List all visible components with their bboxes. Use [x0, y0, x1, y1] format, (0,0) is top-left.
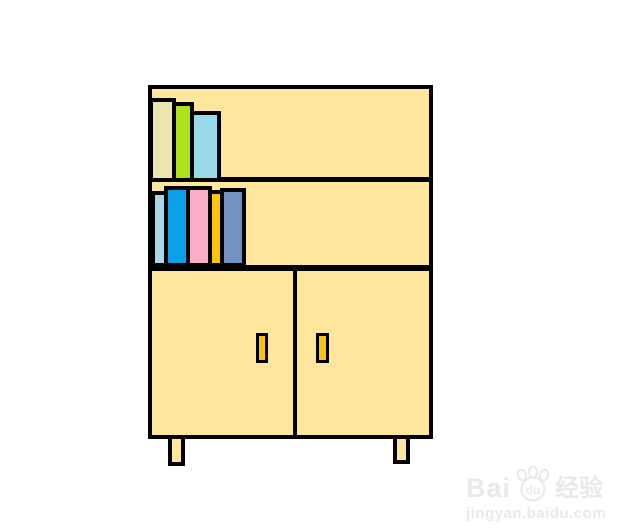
door-divider	[293, 269, 297, 435]
watermark-brand-prefix: Bai	[466, 475, 511, 502]
left-door-handle	[256, 333, 268, 363]
watermark-url: jingyan.baidu.com	[466, 505, 616, 522]
watermark-paw-text: du	[526, 483, 541, 497]
drawing-canvas: Bai du 经验 jingyan.baidu.com	[0, 0, 618, 532]
middle-shelf-book-steel-blue	[220, 188, 246, 267]
watermark-brand-suffix: 经验	[555, 477, 603, 502]
bookcase-leg-left	[168, 435, 185, 466]
right-door-handle	[316, 333, 329, 363]
watermark-logo-row: Bai du 经验	[466, 466, 616, 502]
top-shelf-book-sky-blue	[190, 111, 221, 182]
bookcase-leg-right	[393, 435, 410, 464]
paw-icon: du	[513, 466, 553, 502]
baidu-jingyan-watermark: Bai du 经验 jingyan.baidu.com	[466, 466, 616, 522]
